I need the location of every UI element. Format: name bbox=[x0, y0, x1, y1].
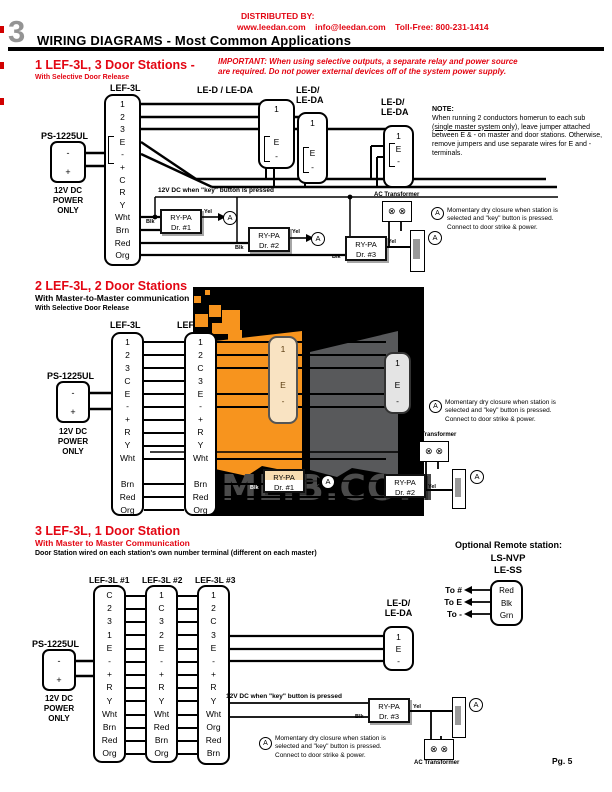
relay-name: RY-PA bbox=[162, 213, 200, 223]
manual-page: 3 WIRING DIAGRAMS - Most Common Applicat… bbox=[0, 0, 612, 792]
terminal: C bbox=[145, 602, 178, 615]
terminal: R bbox=[184, 426, 217, 439]
terminal: Wht bbox=[184, 452, 217, 465]
registration-mark bbox=[0, 26, 4, 33]
power-supply-label-s3: PS-1225UL bbox=[32, 639, 79, 649]
watermark-pixel bbox=[195, 314, 208, 327]
door-terminal-minus: - bbox=[386, 396, 409, 406]
terminal: Red bbox=[104, 237, 141, 250]
watermark-pixel bbox=[194, 296, 201, 303]
power-caption-s3: 12V DCPOWERONLY bbox=[32, 694, 86, 724]
terminal: 2 bbox=[197, 602, 230, 615]
terminal: R bbox=[104, 186, 141, 199]
transformer-terminal-icon: ⊗ bbox=[388, 206, 396, 217]
terminal: Wht bbox=[197, 708, 230, 721]
terminal: 3 bbox=[197, 629, 230, 642]
relay-dr3-s1: RY-PA Dr. #3 bbox=[345, 236, 387, 261]
ac-transformer-s1: ⊗ ⊗ bbox=[382, 201, 412, 222]
master1-terminals-s2: 123CE-+RYWhtBrnRedOrg bbox=[111, 336, 144, 516]
closure-note-line: selected and "key" button is pressed. bbox=[447, 215, 592, 223]
terminal: 2 bbox=[145, 629, 178, 642]
relay-name: RY-PA bbox=[265, 473, 303, 483]
optional-remote-label: Optional Remote station: bbox=[455, 540, 562, 550]
terminal: 3 bbox=[184, 375, 217, 388]
jumper-bracket bbox=[389, 143, 395, 167]
power-caption-line: POWER bbox=[32, 704, 86, 714]
door-label-s3: LE-D/LE-DA bbox=[383, 598, 414, 618]
terminal: 3 bbox=[104, 123, 141, 136]
terminal: - bbox=[145, 655, 178, 668]
terminal: + bbox=[184, 413, 217, 426]
terminal: Brn bbox=[111, 478, 144, 491]
important-note: IMPORTANT: When using selective outputs,… bbox=[218, 57, 518, 77]
power-supply-s2: - + bbox=[56, 381, 90, 423]
transformer-terminal-icon: ⊗ bbox=[436, 446, 444, 457]
closure-note-symbol: A bbox=[259, 737, 272, 750]
door-label-line: LE-DA bbox=[381, 108, 409, 118]
remote-terminal-grn: Grn bbox=[500, 611, 513, 620]
terminal: E bbox=[184, 388, 217, 401]
distributor-info: www.leedan.com info@leedan.com Toll-Free… bbox=[237, 22, 489, 32]
terminal: R bbox=[197, 681, 230, 694]
door-station1-s2: 1 E - bbox=[268, 336, 298, 424]
door-terminal-1: 1 bbox=[386, 358, 409, 368]
page-title: WIRING DIAGRAMS - Most Common Applicatio… bbox=[37, 33, 351, 48]
terminal-plus: + bbox=[70, 407, 75, 417]
door-station2-s1: 1 E - bbox=[297, 112, 328, 184]
door-station-s3: 1 E - bbox=[383, 626, 414, 671]
section3-subtitle2: Door Station wired on each station's own… bbox=[35, 550, 317, 557]
note-pre: When running 2 conductors homerun to eac… bbox=[432, 115, 585, 122]
terminal: Org bbox=[145, 747, 178, 760]
master2-label-s3: LEF-3L #2 bbox=[142, 575, 182, 585]
wire-color-yel: Yel bbox=[413, 704, 421, 710]
jumper-bracket bbox=[303, 147, 309, 173]
terminal: + bbox=[145, 668, 178, 681]
relay-dr1-s1: RY-PA Dr. #1 bbox=[160, 209, 202, 234]
terminal: Y bbox=[93, 695, 126, 708]
page-number: Pg. 5 bbox=[552, 756, 572, 766]
terminal: 1 bbox=[145, 589, 178, 602]
power-supply-label-s2: PS-1225UL bbox=[47, 371, 94, 381]
terminal: Org bbox=[104, 249, 141, 262]
registration-mark bbox=[0, 98, 4, 105]
transformer-label-s1: AC Transformer bbox=[374, 192, 419, 198]
terminal-minus: - bbox=[58, 656, 61, 666]
section2-subtitle1: With Master-to-Master communication bbox=[35, 293, 189, 303]
master2-terminals-s3: 1C32E-+RYWhtRedBrnOrg bbox=[145, 589, 178, 760]
door-terminal-1: 1 bbox=[385, 131, 412, 141]
master-terminals-s1: 123E-+CRYWhtBrnRedOrg bbox=[104, 98, 141, 262]
power-caption-line: ONLY bbox=[32, 714, 86, 724]
relay-dr1-s2: RY-PA Dr. #1 bbox=[263, 469, 305, 493]
closure-note-line: Connect to door strike & power. bbox=[445, 416, 595, 424]
door-terminal-minus: - bbox=[270, 396, 296, 406]
door-strike-plunger bbox=[455, 706, 461, 725]
registration-mark bbox=[0, 62, 4, 69]
terminal: - bbox=[93, 655, 126, 668]
terminal: C bbox=[93, 589, 126, 602]
terminal: Y bbox=[145, 695, 178, 708]
terminal: 1 bbox=[197, 589, 230, 602]
transformer-label-s2: AC Transformer bbox=[411, 432, 456, 438]
watermark-pixel bbox=[212, 323, 222, 334]
header-rule bbox=[8, 47, 604, 51]
terminal: E bbox=[197, 642, 230, 655]
terminal: R bbox=[111, 426, 144, 439]
closure-note-s2: Momentary dry closure when station issel… bbox=[445, 399, 595, 424]
terminal: R bbox=[145, 681, 178, 694]
remote-to-e: To E bbox=[438, 597, 462, 607]
terminal: 1 bbox=[93, 629, 126, 642]
closure-note-line: Momentary dry closure when station is bbox=[445, 399, 595, 407]
terminal: E bbox=[145, 642, 178, 655]
closure-contact-a: A bbox=[311, 232, 325, 246]
distributed-by-label: DISTRIBUTED BY: bbox=[241, 11, 315, 21]
relay-door: Dr. #1 bbox=[265, 483, 303, 493]
relay-name: RY-PA bbox=[370, 702, 408, 712]
terminal: E bbox=[111, 388, 144, 401]
terminal: Red bbox=[184, 491, 217, 504]
terminal: Y bbox=[184, 439, 217, 452]
power-caption-line: ONLY bbox=[40, 206, 96, 216]
terminal: Org bbox=[197, 721, 230, 734]
important-line: IMPORTANT: When using selective outputs,… bbox=[218, 57, 518, 67]
door-label-line: LE-D/ bbox=[383, 598, 414, 608]
master1-label-s2: LEF-3L bbox=[110, 320, 141, 330]
power-caption-line: POWER bbox=[40, 196, 96, 206]
remote-station: Red Blk Grn bbox=[490, 580, 523, 626]
closure-note-line: Connect to door strike & power. bbox=[447, 224, 592, 232]
terminal: Red bbox=[197, 734, 230, 747]
power-caption-s2: 12V DCPOWERONLY bbox=[46, 427, 100, 457]
jumper-bracket bbox=[264, 136, 270, 162]
transformer-terminal-icon: ⊗ bbox=[425, 446, 433, 457]
closure-contact-a: A bbox=[428, 231, 442, 245]
chapter-number: 3 bbox=[8, 14, 25, 50]
closure-contact-a: A bbox=[321, 475, 335, 489]
terminal: C bbox=[184, 362, 217, 375]
terminal-plus: + bbox=[56, 675, 61, 685]
terminal: + bbox=[197, 668, 230, 681]
relay-dr3-s3: RY-PA Dr. #3 bbox=[368, 698, 410, 723]
key-note-s3: 12V DC when "key" button is pressed bbox=[226, 693, 342, 700]
terminal: Wht bbox=[104, 211, 141, 224]
terminal: Red bbox=[145, 721, 178, 734]
transformer-terminal-icon: ⊗ bbox=[441, 744, 449, 755]
relay-dr2-s1: RY-PA Dr. #2 bbox=[248, 227, 290, 252]
wire-color-blk: Blk bbox=[355, 714, 364, 720]
ac-transformer-s2: ⊗ ⊗ bbox=[419, 441, 449, 462]
door-station1-s1: 1 E - bbox=[258, 99, 295, 169]
watermark-pixel bbox=[205, 290, 210, 295]
wire-color-yel: Yel bbox=[204, 209, 212, 215]
section2-subtitle2: With Selective Door Release bbox=[35, 305, 129, 312]
power-supply-s3: - + bbox=[42, 649, 76, 691]
door-station3-s1: 1 E - bbox=[383, 125, 414, 188]
terminal: + bbox=[111, 413, 144, 426]
door-station2-s2: 1 E - bbox=[384, 352, 411, 414]
important-line: are required. Do not power external devi… bbox=[218, 67, 518, 77]
terminal: Y bbox=[104, 199, 141, 212]
wire-color-yel: Yel bbox=[388, 239, 396, 245]
terminal: Brn bbox=[104, 224, 141, 237]
closure-note-line: Momentary dry closure when station is bbox=[275, 735, 435, 743]
section3-subtitle1: With Master to Master Communication bbox=[35, 538, 190, 548]
transformer-label-s3: AC Transformer bbox=[414, 760, 459, 766]
power-caption-line: ONLY bbox=[46, 447, 100, 457]
master1-label-s3: LEF-3L #1 bbox=[89, 575, 129, 585]
terminal: 3 bbox=[145, 615, 178, 628]
terminal: C bbox=[111, 375, 144, 388]
terminal: - bbox=[111, 400, 144, 413]
terminal bbox=[184, 465, 217, 478]
door3-label-s1: LE-D/LE-DA bbox=[381, 98, 409, 117]
watermark-pixel bbox=[228, 330, 242, 344]
jumper-bracket bbox=[108, 136, 114, 164]
master3-terminals-s3: 12C3E-+RYWhtOrgRedBrn bbox=[197, 589, 230, 760]
relay-door: Dr. #2 bbox=[386, 488, 424, 498]
terminal: Wht bbox=[145, 708, 178, 721]
terminal: Y bbox=[197, 695, 230, 708]
wire-color-blk: Blk bbox=[146, 219, 155, 225]
master-label-s1: LEF-3L bbox=[110, 83, 141, 93]
door-terminal-minus: - bbox=[385, 656, 412, 666]
relay-name: RY-PA bbox=[347, 240, 385, 250]
power-supply-label-s1: PS-1225UL bbox=[41, 131, 88, 141]
closure-note-symbol: A bbox=[431, 207, 444, 220]
master1-terminals-s3: C231E-+RYWhtBrnRedOrg bbox=[93, 589, 126, 760]
relay-door: Dr. #3 bbox=[370, 712, 408, 722]
terminal: Y bbox=[111, 439, 144, 452]
terminal: 2 bbox=[111, 349, 144, 362]
closure-note-line: selected and "key" button is pressed. bbox=[445, 407, 595, 415]
door-strike-plunger bbox=[413, 239, 420, 259]
relay-name: RY-PA bbox=[386, 478, 424, 488]
terminal: Brn bbox=[145, 734, 178, 747]
closure-note-line: selected and "key" button is pressed. bbox=[275, 743, 435, 751]
terminal: Org bbox=[93, 747, 126, 760]
power-caption-line: POWER bbox=[46, 437, 100, 447]
door-terminal-1: 1 bbox=[299, 118, 326, 128]
terminal-plus: + bbox=[65, 167, 70, 177]
door-terminal-e: E bbox=[270, 380, 296, 390]
master2-terminals-s2: 12C3E-+RYWhtBrnRedOrg bbox=[184, 336, 217, 516]
terminal: Brn bbox=[93, 721, 126, 734]
remote-to-minus: To - bbox=[438, 609, 462, 619]
door-label-line: LE-DA bbox=[296, 96, 324, 106]
door2-label-s1: LE-D/LE-DA bbox=[296, 86, 324, 105]
section1-title: 1 LEF-3L, 3 Door Stations - bbox=[35, 58, 195, 72]
relay-door: Dr. #3 bbox=[347, 250, 385, 260]
door-terminal-1: 1 bbox=[260, 104, 293, 114]
remote-model-1: LS-NVP bbox=[458, 553, 558, 564]
power-supply-s1: - + bbox=[50, 141, 86, 183]
key-note-s1: 12V DC when "key" button is pressed bbox=[158, 187, 274, 194]
terminal: 2 bbox=[93, 602, 126, 615]
wire-color-blk: Blk bbox=[332, 254, 341, 260]
terminal: 3 bbox=[111, 362, 144, 375]
door-terminal-e: E bbox=[386, 380, 409, 390]
power-caption-line: 12V DC bbox=[40, 186, 96, 196]
closure-note-line: Connect to door strike & power. bbox=[275, 752, 435, 760]
power-caption-line: 12V DC bbox=[46, 427, 100, 437]
closure-contact-a: A bbox=[469, 698, 483, 712]
wire-color-yel: Yel bbox=[292, 229, 300, 235]
transformer-terminal-icon: ⊗ bbox=[399, 206, 407, 217]
wire-color-blk: Blk bbox=[250, 485, 259, 491]
terminal: E bbox=[93, 642, 126, 655]
terminal: + bbox=[93, 668, 126, 681]
section1-subtitle: With Selective Door Release bbox=[35, 74, 129, 81]
terminal: 1 bbox=[111, 336, 144, 349]
terminal: C bbox=[197, 615, 230, 628]
terminal: Red bbox=[111, 491, 144, 504]
remote-terminal-blk: Blk bbox=[501, 599, 512, 608]
remote-to-1: To # bbox=[438, 585, 462, 595]
terminal: 1 bbox=[184, 336, 217, 349]
terminal: Brn bbox=[197, 747, 230, 760]
terminal bbox=[111, 465, 144, 478]
terminal: Red bbox=[93, 734, 126, 747]
door-terminal-1: 1 bbox=[270, 344, 296, 354]
terminal: C bbox=[104, 174, 141, 187]
terminal: Org bbox=[111, 504, 144, 517]
remote-model-2: LE-SS bbox=[458, 565, 558, 576]
door-label-line: LE-DA bbox=[383, 608, 414, 618]
door-strike-plunger bbox=[455, 478, 461, 497]
closure-contact-a: A bbox=[223, 211, 237, 225]
closure-note-s3: Momentary dry closure when station issel… bbox=[275, 735, 435, 760]
relay-dr2-s2: RY-PA Dr. #2 bbox=[384, 474, 426, 498]
watermark-pixel bbox=[209, 305, 221, 317]
terminal: Wht bbox=[93, 708, 126, 721]
note-underlined: (single master system only) bbox=[432, 124, 517, 131]
terminal: - bbox=[184, 400, 217, 413]
terminal: R bbox=[93, 681, 126, 694]
closure-note-symbol: A bbox=[429, 400, 442, 413]
relay-door: Dr. #2 bbox=[250, 241, 288, 251]
closure-contact-a: A bbox=[470, 470, 484, 484]
terminal: 2 bbox=[184, 349, 217, 362]
relay-name: RY-PA bbox=[250, 231, 288, 241]
power-caption-line: 12V DC bbox=[32, 694, 86, 704]
terminal: 3 bbox=[93, 615, 126, 628]
section2-title: 2 LEF-3L, 2 Door Stations bbox=[35, 279, 187, 293]
remote-terminal-red: Red bbox=[499, 586, 514, 595]
terminal: Org bbox=[184, 504, 217, 517]
terminal-minus: - bbox=[72, 388, 75, 398]
terminal: Brn bbox=[184, 478, 217, 491]
door1-label-s1: LE-D / LE-DA bbox=[197, 85, 253, 95]
terminal: 2 bbox=[104, 111, 141, 124]
note-block: NOTE: When running 2 conductors homerun … bbox=[432, 106, 606, 159]
terminal: - bbox=[197, 655, 230, 668]
terminal: Wht bbox=[111, 452, 144, 465]
closure-note-s1: Momentary dry closure when station issel… bbox=[447, 207, 592, 232]
relay-door: Dr. #1 bbox=[162, 223, 200, 233]
wire-color-yel: Yel bbox=[428, 484, 436, 490]
power-caption-s1: 12V DCPOWERONLY bbox=[40, 186, 96, 216]
terminal-minus: - bbox=[67, 148, 70, 158]
section3-title: 3 LEF-3L, 1 Door Station bbox=[35, 524, 180, 538]
note-heading: NOTE: bbox=[432, 106, 454, 113]
wire-color-blk: Blk bbox=[235, 245, 244, 251]
door-terminal-e: E bbox=[385, 644, 412, 654]
closure-note-line: Momentary dry closure when station is bbox=[447, 207, 592, 215]
master3-label-s3: LEF-3L #3 bbox=[195, 575, 235, 585]
door-terminal-1: 1 bbox=[385, 632, 412, 642]
terminal: 1 bbox=[104, 98, 141, 111]
